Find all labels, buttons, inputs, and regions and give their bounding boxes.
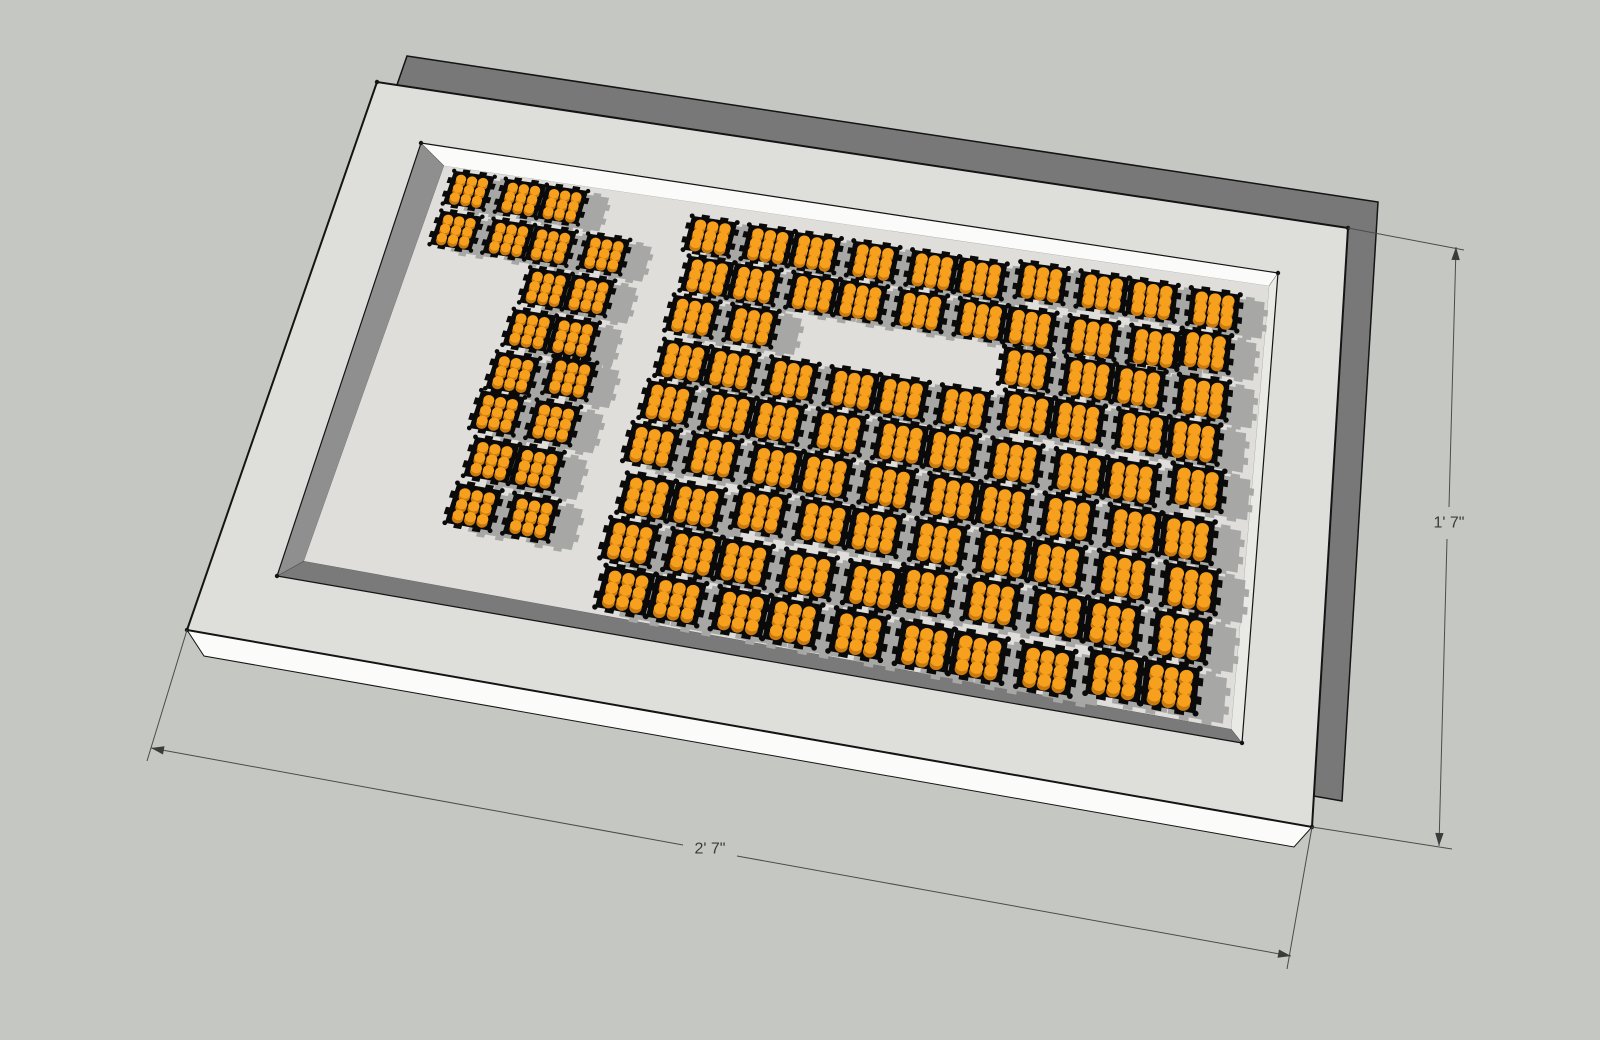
corner-pin (1216, 568, 1222, 574)
3d-scene[interactable]: 2' 7" 1' 7" (0, 0, 1600, 1040)
led-dot (599, 249, 610, 259)
corner-pin (690, 213, 695, 218)
led-dot (707, 450, 719, 461)
corner-pin (746, 434, 751, 439)
corner-pin (1123, 311, 1128, 316)
led-dot (880, 444, 892, 455)
led-dot (690, 238, 701, 248)
led-dot (801, 525, 814, 537)
corner-pin (903, 282, 908, 287)
corner-pin (1172, 319, 1177, 324)
led-dot (904, 637, 917, 649)
led-dot (864, 642, 877, 654)
led-dot (1049, 569, 1062, 581)
led-dot (997, 443, 1010, 455)
led-dot (1063, 571, 1076, 583)
led-dot (815, 527, 828, 539)
led-dot (834, 461, 846, 472)
led-dot (1209, 403, 1222, 415)
led-dot (813, 582, 826, 594)
led-dot (986, 284, 998, 295)
corner-pin (920, 417, 925, 422)
led-dot (880, 539, 893, 551)
led-dot (1200, 447, 1213, 459)
corner-pin (850, 504, 855, 509)
led-dot (585, 256, 596, 266)
led-dot (744, 330, 756, 341)
led-dot (969, 414, 981, 425)
led-dot (560, 233, 570, 243)
led-dot (1025, 265, 1037, 276)
led-dot (1086, 331, 1098, 342)
led-dot (798, 630, 811, 642)
led-dot (809, 247, 821, 258)
led-dot (630, 478, 642, 489)
led-dot (780, 474, 792, 485)
corner-pin (700, 381, 705, 386)
corner-pin (831, 270, 836, 275)
led-dot (1119, 632, 1132, 644)
led-dot (656, 452, 668, 463)
led-dot (630, 448, 642, 459)
corner-pin (603, 563, 608, 568)
corner-pin (618, 272, 623, 277)
corner-pin (871, 410, 876, 415)
corner-pin (899, 617, 905, 623)
led-dot (1058, 475, 1071, 487)
led-dot (1006, 415, 1018, 426)
led-dot (1126, 464, 1139, 476)
led-dot (627, 525, 639, 536)
led-dot (539, 405, 550, 415)
led-dot (973, 282, 985, 293)
corner-pin (723, 487, 728, 492)
led-dot (927, 265, 939, 276)
led-dot (533, 425, 544, 435)
led-dot (774, 405, 786, 416)
led-dot (1175, 421, 1188, 433)
led-dot (782, 428, 794, 439)
led-dot (1070, 360, 1082, 371)
led-dot (704, 261, 715, 272)
led-dot (662, 397, 674, 408)
corner-pin (1102, 542, 1108, 548)
led-dot (1020, 362, 1032, 373)
led-dot (783, 383, 795, 394)
corner-pin (811, 645, 817, 651)
led-dot (919, 534, 932, 546)
led-dot (691, 458, 703, 469)
corner-pin (840, 600, 846, 606)
corner-marker (419, 141, 423, 145)
corner-pin (1197, 666, 1203, 672)
corner-pin (595, 361, 600, 366)
corner-pin (1053, 396, 1058, 401)
led-dot (1190, 492, 1203, 504)
corner-pin (1083, 545, 1089, 551)
corner-pin (636, 415, 641, 420)
led-dot (467, 176, 477, 185)
led-dot (1024, 447, 1037, 459)
led-dot (998, 610, 1011, 622)
led-dot (575, 279, 586, 289)
led-dot (1077, 503, 1090, 515)
led-dot (1165, 667, 1179, 680)
led-dot (534, 452, 545, 462)
dimension-line (1439, 539, 1447, 846)
led-dot (868, 256, 880, 267)
led-dot (531, 463, 542, 473)
led-dot (1019, 417, 1031, 428)
led-dot (787, 407, 799, 418)
led-dot (1047, 288, 1059, 299)
led-dot (453, 184, 463, 193)
led-dot (627, 488, 639, 499)
led-dot (1132, 560, 1145, 572)
corner-pin (1077, 587, 1083, 593)
led-dot (1125, 660, 1139, 673)
led-dot (718, 463, 730, 474)
led-dot (848, 373, 860, 384)
led-dot (902, 649, 915, 661)
led-dot (911, 383, 923, 394)
led-dot (1117, 569, 1130, 581)
led-dot (972, 650, 985, 662)
corner-pin (452, 169, 456, 173)
corner-pin (1144, 599, 1150, 605)
led-dot (840, 613, 853, 625)
led-dot (734, 606, 747, 618)
led-dot (543, 250, 553, 260)
led-dot (984, 607, 997, 619)
corner-pin (455, 480, 460, 485)
corner-pin (803, 404, 808, 409)
corner-pin (728, 525, 733, 530)
led-dot (1196, 391, 1209, 403)
led-dot (519, 184, 529, 193)
led-dot (735, 568, 748, 580)
led-dot (922, 572, 935, 584)
led-dot (616, 596, 629, 608)
led-dot (1022, 352, 1034, 363)
led-dot (1084, 341, 1096, 352)
led-dot (1033, 364, 1045, 375)
corner-pin (442, 520, 447, 525)
led-dot (822, 280, 834, 291)
corner-pin (562, 450, 567, 455)
led-dot (1107, 606, 1120, 618)
led-dot (1129, 512, 1142, 524)
led-dot (1012, 492, 1025, 504)
led-dot (523, 522, 534, 533)
corner-pin (870, 455, 875, 460)
corner-pin (910, 247, 915, 252)
led-dot (568, 201, 578, 211)
led-dot (501, 419, 512, 429)
corner-pin (927, 425, 932, 430)
led-dot (1195, 534, 1208, 546)
corner-pin (711, 576, 716, 581)
corner-pin (551, 489, 556, 494)
led-dot (1009, 455, 1022, 467)
led-dot (1036, 555, 1049, 567)
led-dot (844, 438, 856, 449)
led-dot (1125, 475, 1138, 487)
led-dot (1148, 689, 1162, 702)
led-dot (754, 548, 767, 560)
led-dot (733, 419, 745, 430)
led-dot (519, 370, 530, 380)
led-dot (934, 586, 947, 598)
corner-pin (817, 362, 822, 367)
led-dot (673, 545, 686, 557)
led-dot (550, 381, 561, 391)
corner-pin (951, 332, 956, 337)
corner-pin (557, 498, 562, 503)
corner-pin (1031, 536, 1037, 542)
led-dot (748, 278, 760, 289)
led-dot (1018, 373, 1030, 384)
led-dot (1087, 407, 1100, 419)
led-dot (775, 601, 788, 613)
corner-pin (1218, 422, 1223, 427)
dimension-width-label: 2' 7" (695, 841, 726, 858)
led-dot (975, 314, 987, 325)
led-dot (717, 232, 728, 242)
led-dot (1200, 572, 1213, 584)
led-dot (715, 241, 726, 251)
corner-marker (1240, 741, 1244, 745)
led-dot (723, 592, 736, 604)
led-dot (801, 365, 813, 376)
corner-pin (839, 236, 844, 241)
led-dot (540, 475, 551, 485)
led-dot (1158, 305, 1170, 316)
led-dot (748, 247, 759, 258)
corner-pin (842, 545, 847, 550)
led-dot (649, 395, 661, 406)
corner-pin (1066, 266, 1071, 271)
led-dot (733, 318, 745, 329)
led-dot (518, 226, 528, 236)
led-dot (940, 266, 952, 277)
led-dot (932, 489, 945, 501)
corner-pin (914, 516, 920, 522)
led-dot (855, 523, 868, 535)
led-dot (844, 283, 856, 294)
corner-pin (467, 426, 472, 431)
corner-pin (927, 471, 932, 476)
corner-pin (747, 222, 752, 227)
led-dot (687, 585, 700, 597)
led-dot (743, 492, 755, 503)
led-dot (1198, 354, 1210, 365)
led-dot (1132, 391, 1145, 403)
led-dot (1034, 286, 1046, 297)
led-dot (689, 301, 701, 312)
led-dot (964, 302, 976, 313)
led-dot (956, 412, 968, 423)
corner-pin (848, 558, 854, 564)
corner-pin (1185, 321, 1190, 326)
led-dot (526, 511, 537, 522)
led-dot (1007, 466, 1020, 478)
led-dot (853, 263, 865, 274)
corner-pin (575, 229, 579, 233)
led-dot (782, 463, 794, 474)
led-dot (712, 282, 723, 293)
led-dot (971, 404, 983, 415)
corner-pin (534, 216, 538, 220)
corner-pin (843, 497, 848, 502)
led-dot (510, 333, 521, 343)
led-dot (1073, 329, 1085, 340)
led-dot (512, 245, 522, 255)
led-dot (817, 480, 829, 491)
led-dot (659, 407, 671, 418)
led-dot (766, 471, 778, 482)
corner-pin (706, 388, 711, 393)
led-dot (495, 223, 505, 233)
led-dot (504, 378, 515, 388)
corner-pin (491, 217, 495, 221)
led-dot (1049, 498, 1062, 510)
led-dot (1126, 534, 1139, 546)
led-dot (756, 458, 768, 469)
led-dot (450, 192, 460, 201)
led-dot (723, 373, 735, 384)
led-dot (474, 452, 485, 462)
corner-pin (1163, 453, 1168, 458)
led-dot (884, 424, 896, 435)
led-dot (590, 238, 601, 248)
led-dot (929, 297, 941, 308)
led-dot (945, 550, 958, 562)
led-dot (824, 239, 836, 250)
led-dot (1008, 350, 1020, 361)
corner-pin (1175, 362, 1180, 367)
led-dot (734, 286, 746, 297)
led-dot (904, 293, 916, 304)
led-dot (931, 548, 944, 560)
led-dot (1095, 385, 1107, 396)
led-dot (522, 360, 533, 370)
led-dot (453, 510, 464, 520)
led-dot (1023, 672, 1036, 684)
led-dot (1070, 426, 1083, 438)
led-dot (610, 250, 621, 260)
led-dot (836, 637, 849, 649)
corner-pin (958, 254, 963, 259)
led-dot (819, 258, 831, 269)
led-dot (724, 554, 737, 566)
led-dot (818, 299, 830, 310)
corner-pin (512, 307, 517, 312)
corner-pin (1227, 379, 1232, 384)
corner-pin (793, 488, 798, 493)
led-dot (1057, 423, 1070, 435)
led-dot (684, 596, 697, 608)
led-dot (1013, 539, 1026, 551)
corner-pin (783, 305, 788, 310)
corner-pin (891, 280, 896, 285)
corner-pin (691, 430, 696, 435)
led-dot (440, 224, 450, 233)
corner-pin (439, 208, 443, 212)
corner-pin (914, 468, 919, 473)
led-dot (640, 491, 652, 502)
led-dot (1199, 344, 1211, 355)
led-dot (1052, 607, 1065, 619)
corner-pin (893, 554, 898, 559)
corner-pin (564, 264, 568, 268)
corner-pin (1152, 503, 1158, 509)
led-dot (1173, 432, 1186, 444)
led-dot (613, 523, 625, 534)
led-dot (649, 429, 661, 440)
led-dot (1032, 375, 1044, 386)
led-dot (1048, 509, 1061, 521)
corner-pin (996, 381, 1001, 386)
led-dot (624, 499, 636, 510)
corner-pin (945, 613, 951, 619)
corner-pin (970, 472, 975, 477)
led-dot (975, 272, 987, 283)
led-dot (1027, 648, 1040, 660)
corner-pin (771, 544, 776, 549)
corner-pin (479, 388, 484, 393)
corner-pin (1055, 311, 1060, 316)
led-dot (722, 407, 734, 418)
led-dot (736, 308, 748, 319)
corner-pin (427, 242, 431, 246)
led-dot (1186, 342, 1198, 353)
led-dot (565, 342, 576, 352)
led-dot (559, 320, 570, 330)
led-dot (882, 528, 895, 540)
corner-pin (945, 671, 951, 677)
corner-pin (694, 623, 699, 628)
corner-pin (1088, 646, 1094, 652)
led-dot (903, 593, 916, 605)
led-dot (1140, 466, 1153, 478)
corner-pin (1148, 650, 1154, 656)
corner-pin (733, 261, 738, 266)
corner-pin (1048, 485, 1053, 490)
led-dot (670, 556, 683, 568)
corner-pin (625, 470, 630, 475)
corner-pin (1166, 500, 1172, 506)
led-dot (553, 340, 564, 350)
corner-pin (802, 449, 807, 454)
led-dot (1127, 523, 1140, 535)
led-dot (857, 285, 869, 296)
led-dot (1183, 389, 1196, 401)
led-dot (688, 510, 700, 521)
corner-pin (990, 435, 995, 440)
viewport[interactable]: 2' 7" 1' 7" (0, 0, 1600, 1040)
corner-pin (1042, 490, 1048, 496)
led-dot (546, 454, 557, 464)
corner-pin (979, 527, 985, 533)
led-dot (976, 263, 988, 274)
corner-pin (965, 524, 971, 530)
led-dot (651, 504, 663, 515)
led-dot (983, 498, 996, 510)
led-dot (1162, 343, 1174, 354)
led-dot (717, 263, 728, 274)
corner-pin (748, 389, 753, 394)
